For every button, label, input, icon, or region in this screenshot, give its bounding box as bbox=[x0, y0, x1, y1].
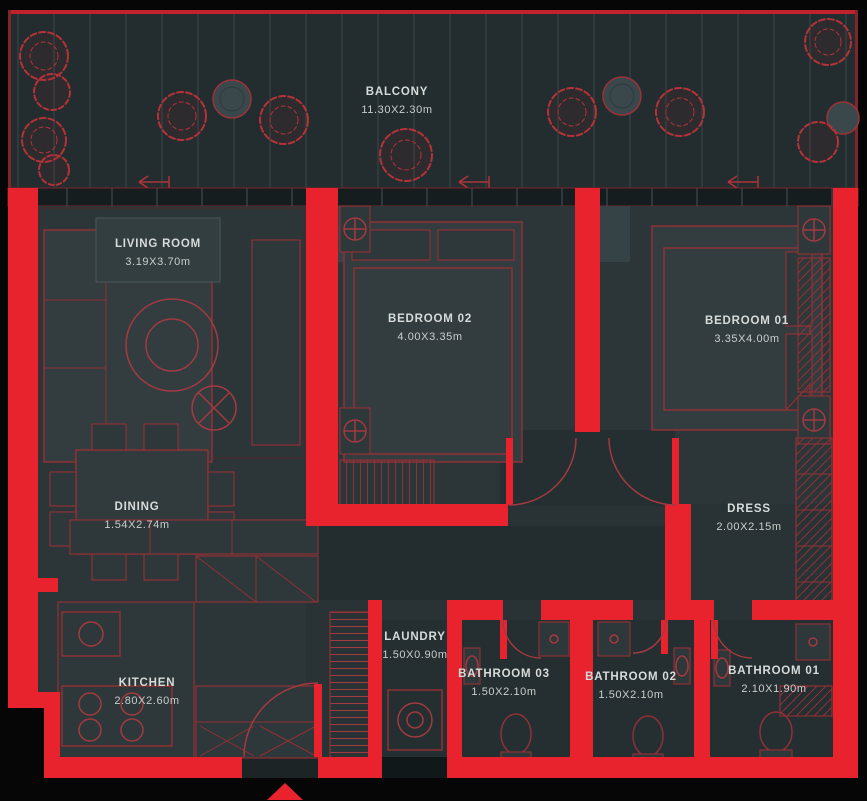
wall-bed02-bed01 bbox=[575, 206, 600, 432]
bedroom-01-furniture bbox=[652, 206, 830, 444]
shower-icon bbox=[539, 622, 569, 656]
floor-plan-drawing bbox=[0, 0, 867, 801]
lamp-icon bbox=[803, 219, 825, 241]
wall-bottom-right bbox=[447, 757, 835, 778]
wall-left bbox=[8, 206, 38, 706]
exterior-mask bbox=[0, 708, 44, 801]
tree-icon bbox=[798, 122, 838, 162]
tree-icon bbox=[805, 19, 851, 65]
shower-icon bbox=[598, 622, 630, 656]
wall-right bbox=[833, 206, 858, 778]
lamp-icon bbox=[344, 420, 366, 442]
planter-icon bbox=[213, 80, 251, 118]
tv-unit bbox=[252, 240, 300, 445]
tree-icon bbox=[380, 129, 432, 181]
kitchen-left-counter bbox=[58, 602, 194, 760]
lamp-icon bbox=[344, 218, 366, 240]
wall-bottom-left bbox=[44, 757, 242, 778]
lamp-icon bbox=[803, 409, 825, 431]
tree-icon bbox=[158, 92, 206, 140]
tree-icon bbox=[656, 88, 704, 136]
louver-closet bbox=[330, 612, 372, 758]
label-panel bbox=[96, 218, 220, 282]
floor-plan-canvas: BALCONY11.30X2.30mLIVING ROOM3.19X3.70mB… bbox=[0, 0, 867, 801]
entrance-arrow-icon bbox=[267, 783, 303, 800]
tree-icon bbox=[548, 88, 596, 136]
window-band bbox=[8, 188, 858, 206]
wardrobe-hatch bbox=[340, 460, 434, 506]
bedroom-02-furniture bbox=[340, 206, 522, 506]
shower-icon bbox=[796, 624, 830, 660]
wall-living-bed02 bbox=[306, 206, 338, 506]
tree-icon bbox=[260, 96, 308, 144]
wardrobe-hatch bbox=[798, 258, 830, 392]
planter-icon bbox=[603, 77, 641, 115]
balcony-area bbox=[8, 10, 858, 190]
